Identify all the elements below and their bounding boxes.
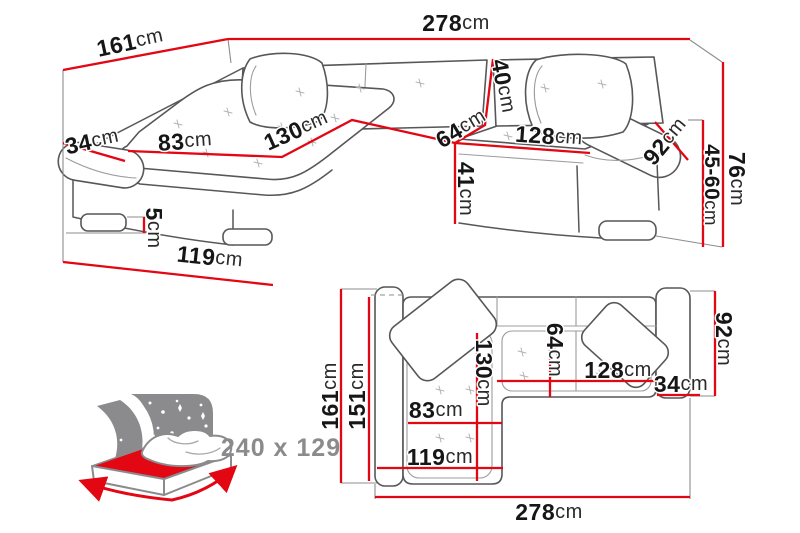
plan-label-chaise-width: 119cm xyxy=(407,444,473,470)
plan-label-width-total: 278cm xyxy=(515,499,583,525)
dim-label-leg-height: 5cm xyxy=(141,208,167,249)
plan-label-depth-right: 92cm xyxy=(711,312,737,366)
dim-label-total-height: 76cm xyxy=(724,152,750,206)
plan-label-chaise-length: 130cm xyxy=(471,339,497,407)
sofa-dimensions-diagram: 161cm 278cm 34cm 83cm 130cm 40cm 64cm 12… xyxy=(0,0,800,533)
dim-label-seat-front-height: 41cm xyxy=(453,162,479,216)
plan-label-depth-total: 161cm xyxy=(317,362,343,430)
sleeping-area-size-label: 240 x 129 xyxy=(221,434,341,462)
plan-label-chaise-seat-width: 83cm xyxy=(409,397,463,423)
dim-label-length-total: 278cm xyxy=(422,10,490,36)
bed-sleeping-area-icon xyxy=(84,394,233,500)
plan-label-arm-width-right: 34cm xyxy=(654,371,708,397)
plan-label-corner-seat: 64cm xyxy=(542,323,568,377)
plan-label-seat-length-right: 128cm xyxy=(584,357,652,383)
diagram-canvas: 161cm 278cm 34cm 83cm 130cm 40cm 64cm 12… xyxy=(0,0,800,533)
dim-label-length-left: 161cm xyxy=(94,22,165,61)
dim-label-seat-height-range: 45-60cm xyxy=(701,144,724,226)
plan-label-depth-inner: 151cm xyxy=(344,362,370,430)
